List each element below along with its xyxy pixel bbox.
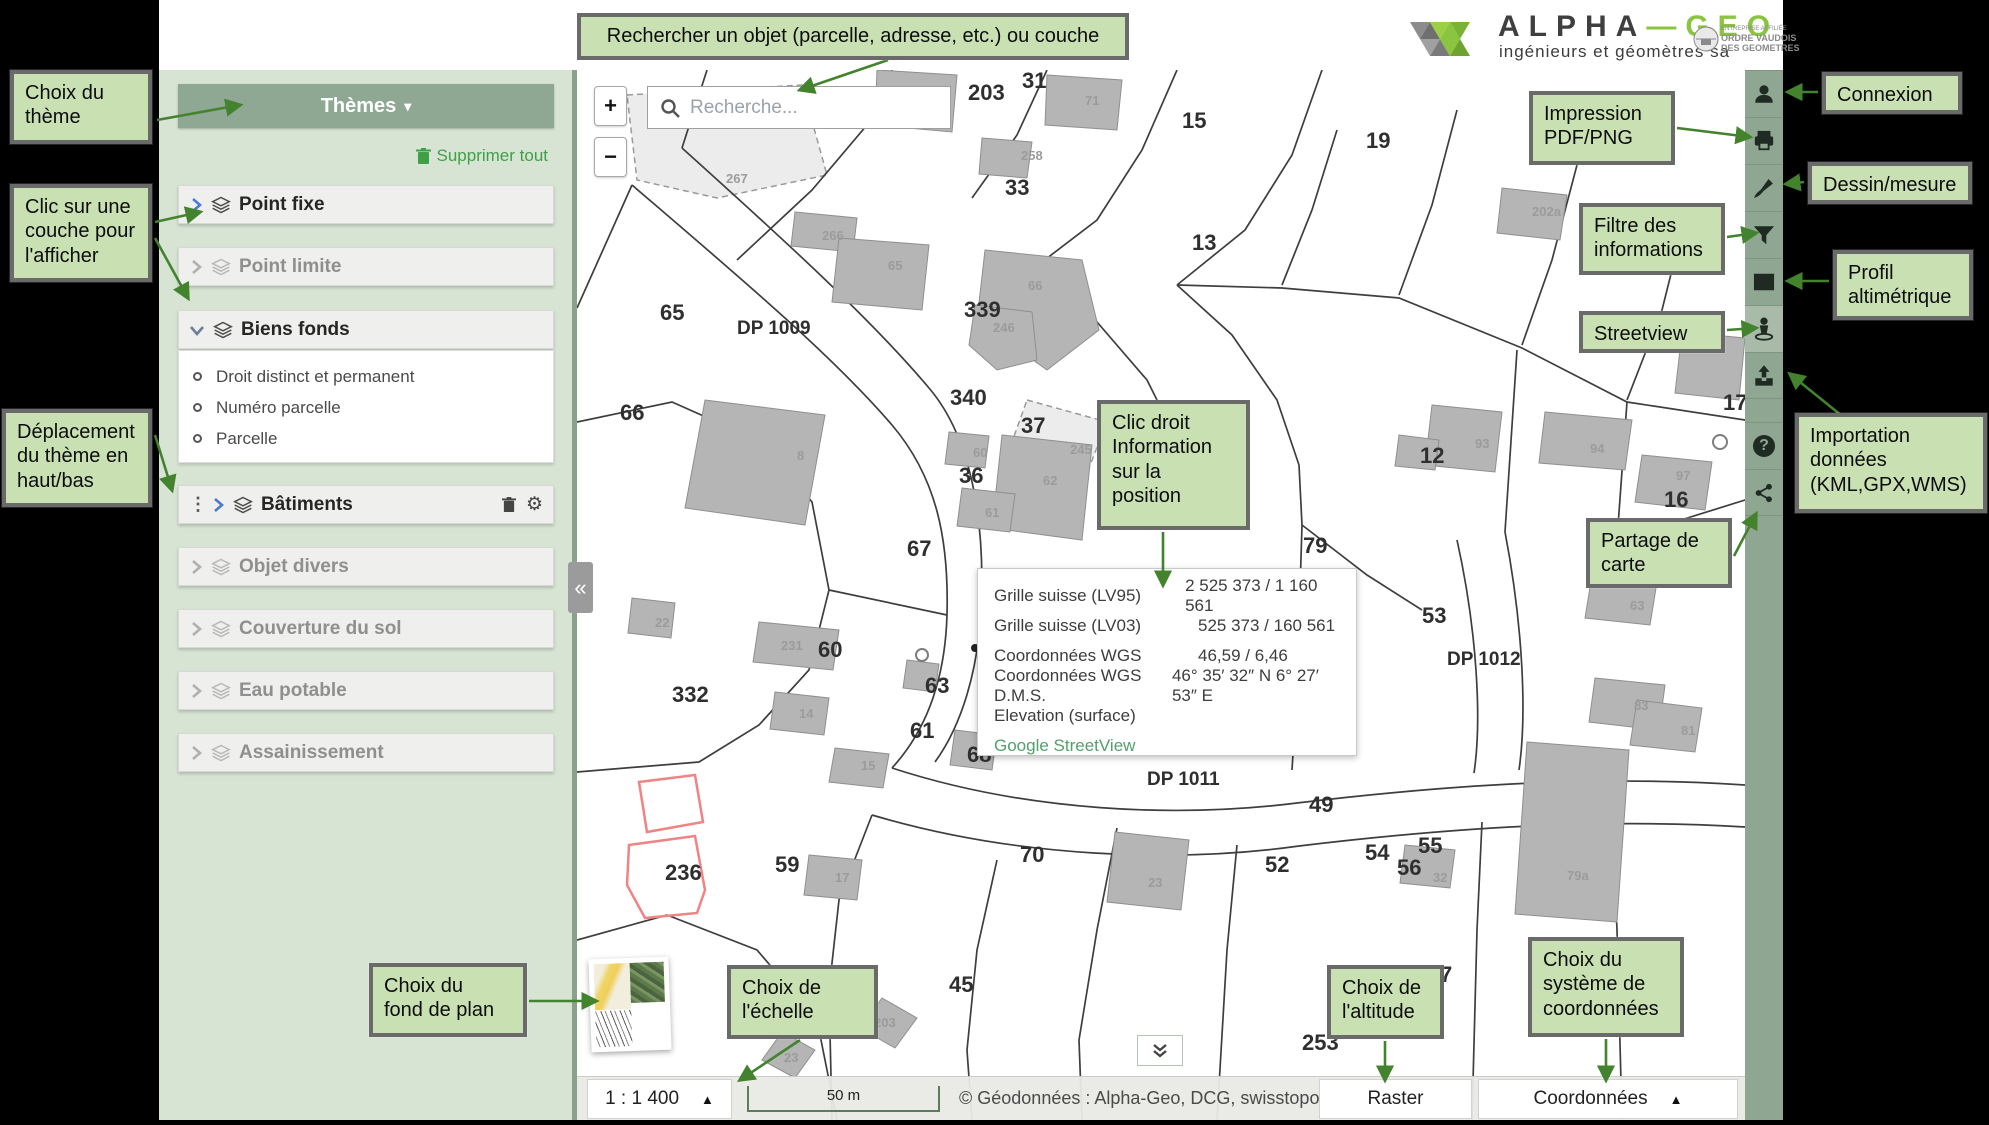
map-statusbar: 1 : 1 400▲ 50 m © Géodonnées : Alpha-Geo…: [577, 1076, 1745, 1120]
svg-text:17: 17: [835, 870, 849, 885]
layer-row-point-fixe[interactable]: Point fixe: [178, 185, 554, 224]
radio-bullet-icon: [193, 434, 202, 443]
layer-row-eau-potable[interactable]: Eau potable: [178, 671, 554, 710]
svg-text:23: 23: [1148, 875, 1162, 890]
svg-text:60: 60: [973, 445, 987, 460]
callout-choix-theme: Choix du thème: [10, 70, 152, 144]
callout-profil: Profil altimétrique: [1833, 250, 1973, 320]
elevation-profile-icon: [1753, 271, 1775, 293]
svg-text:54: 54: [1365, 840, 1390, 865]
layer-row-point-limite[interactable]: Point limite: [178, 247, 554, 286]
alpha-geo-logo: ALPHA—GEO ingénieurs et géomètres sa ENT…: [1408, 4, 1783, 66]
svg-text:79: 79: [1303, 533, 1327, 558]
svg-text:267: 267: [726, 171, 748, 186]
print-icon: [1753, 130, 1775, 152]
layer-label: Point limite: [239, 256, 543, 278]
coordinate-system-select[interactable]: Coordonnées▲: [1478, 1079, 1738, 1119]
filter-icon: [1753, 224, 1775, 246]
svg-text:63: 63: [925, 673, 949, 698]
chevron-right-icon[interactable]: [189, 559, 203, 575]
svg-text:94: 94: [1590, 441, 1605, 456]
svg-text:53: 53: [1422, 603, 1446, 628]
help-button[interactable]: ?: [1745, 422, 1783, 469]
svg-text:266: 266: [822, 228, 844, 243]
svg-text:13: 13: [1192, 230, 1216, 255]
sublayer-item[interactable]: Parcelle: [193, 423, 539, 454]
chevron-right-icon[interactable]: [189, 621, 203, 637]
brush-icon: [1753, 177, 1775, 199]
layers-icon: [211, 558, 231, 576]
layers-icon: [211, 196, 231, 214]
screenshot-stage: ALPHA—GEO ingénieurs et géomètres sa ENT…: [0, 0, 1989, 1125]
double-chevron-down-icon: [1149, 1043, 1171, 1059]
layers-icon: [211, 258, 231, 276]
svg-text:258: 258: [1021, 148, 1043, 163]
svg-text:66: 66: [1028, 278, 1042, 293]
upload-icon: [1753, 365, 1775, 387]
callout-echelle: Choix de l'échelle: [727, 965, 878, 1039]
share-button[interactable]: [1745, 469, 1783, 516]
svg-text:16: 16: [1664, 487, 1688, 512]
svg-text:17: 17: [1723, 390, 1745, 415]
svg-text:52: 52: [1265, 852, 1289, 877]
chevron-right-icon[interactable]: [189, 683, 203, 699]
callout-importation: Importation données (KML,GPX,WMS): [1795, 413, 1987, 513]
svg-text:62: 62: [1043, 473, 1057, 488]
collapse-sidebar-button[interactable]: «: [568, 562, 593, 613]
basemap-switcher[interactable]: [588, 957, 671, 1053]
svg-text:37: 37: [1021, 413, 1045, 438]
svg-text:55: 55: [1418, 833, 1442, 858]
chevron-right-icon[interactable]: [211, 497, 225, 513]
drag-handle-icon[interactable]: ⋮: [189, 494, 205, 515]
svg-text:15: 15: [861, 758, 875, 773]
svg-text:339: 339: [964, 297, 1001, 322]
scale-select[interactable]: 1 : 1 400▲: [587, 1079, 732, 1119]
badge-circle-icon: [1693, 26, 1719, 52]
svg-text:22: 22: [655, 615, 669, 630]
chevron-right-icon[interactable]: [189, 197, 203, 213]
svg-text:202a: 202a: [1532, 204, 1562, 219]
svg-text:DP 1012: DP 1012: [1447, 649, 1521, 670]
svg-text:19: 19: [1366, 128, 1390, 153]
layers-icon: [211, 744, 231, 762]
layer-row-assainissement[interactable]: Assainissement: [178, 733, 554, 772]
elevation-profile-button[interactable]: [1745, 258, 1783, 305]
callout-systeme-coordonnees: Choix du système de coordonnées: [1528, 937, 1684, 1037]
svg-text:236: 236: [665, 860, 702, 885]
streetview-button[interactable]: [1745, 305, 1783, 352]
svg-text:59: 59: [775, 852, 799, 877]
layers-icon: [211, 682, 231, 700]
layers-icon: [233, 496, 253, 514]
radio-bullet-icon: [193, 372, 202, 381]
svg-text:49: 49: [1309, 792, 1333, 817]
help-icon: ?: [1753, 435, 1775, 457]
layer-label: Assainissement: [239, 742, 543, 764]
callout-recherche: Rechercher un objet (parcelle, adresse, …: [577, 13, 1129, 60]
search-bar[interactable]: [647, 86, 951, 129]
streetview-icon: [1753, 317, 1775, 341]
svg-text:79a: 79a: [1567, 868, 1589, 883]
svg-text:31: 31: [1022, 70, 1046, 93]
layer-row-objet-divers[interactable]: Objet divers: [178, 547, 554, 586]
svg-text:340: 340: [950, 385, 987, 410]
svg-text:61: 61: [910, 718, 934, 743]
map-attribution: © Géodonnées : Alpha-Geo, DCG, swisstopo…: [959, 1088, 1370, 1109]
callout-fond-de-plan: Choix du fond de plan: [369, 963, 527, 1037]
svg-text:56: 56: [1397, 855, 1421, 880]
svg-text:63: 63: [1630, 598, 1644, 613]
clear-all-button[interactable]: Supprimer tout: [416, 146, 549, 166]
svg-text:97: 97: [1676, 468, 1690, 483]
import-data-button[interactable]: [1745, 352, 1783, 399]
svg-text:71: 71: [1085, 93, 1099, 108]
scalebar: 50 m: [747, 1086, 940, 1112]
svg-text:8: 8: [797, 448, 804, 463]
trash-icon[interactable]: [502, 497, 516, 513]
collapse-bottom-button[interactable]: [1137, 1035, 1183, 1066]
login-button[interactable]: [1745, 70, 1783, 117]
share-icon: [1754, 482, 1774, 504]
svg-text:67: 67: [907, 536, 931, 561]
svg-text:65: 65: [660, 300, 684, 325]
svg-text:70: 70: [1020, 842, 1044, 867]
svg-text:81: 81: [1681, 723, 1695, 738]
svg-text:332: 332: [672, 682, 709, 707]
logo-hexagon-icon: [1408, 6, 1488, 64]
layer-label: Bâtiments: [261, 494, 494, 516]
callout-clic-couche: Clic sur une couche pour l'afficher: [10, 184, 152, 282]
callout-filtre: Filtre des informations: [1579, 203, 1725, 275]
svg-text:66: 66: [620, 400, 644, 425]
zoom-out-button[interactable]: −: [594, 137, 627, 177]
svg-text:231: 231: [781, 638, 803, 653]
svg-text:60: 60: [818, 637, 842, 662]
chevron-down-icon: ▾: [404, 98, 411, 115]
search-icon: [660, 98, 680, 118]
layer-label: Objet divers: [239, 556, 543, 578]
layer-label: Biens fonds: [241, 319, 543, 341]
svg-text:33: 33: [1005, 175, 1029, 200]
svg-text:14: 14: [799, 706, 814, 721]
biens-fonds-sublayers: Droit distinct et permanent Numéro parce…: [178, 350, 554, 463]
trash-icon: [416, 148, 431, 165]
google-streetview-link[interactable]: Google StreetView: [994, 736, 1135, 756]
filter-button[interactable]: [1745, 211, 1783, 258]
svg-text:DP 1011: DP 1011: [1147, 769, 1220, 790]
tools-toolbar: ?: [1745, 70, 1783, 1120]
svg-text:93: 93: [1475, 436, 1489, 451]
callout-altitude: Choix de l'altitude: [1327, 965, 1444, 1039]
svg-text:15: 15: [1182, 108, 1206, 133]
gear-icon[interactable]: ⚙: [526, 493, 543, 516]
chevron-right-icon[interactable]: [189, 745, 203, 761]
callout-streetview: Streetview: [1579, 311, 1725, 353]
layer-label: Point fixe: [239, 194, 543, 216]
layers-icon: [213, 321, 233, 339]
svg-text:65: 65: [888, 258, 902, 273]
basemap-mode-select[interactable]: Raster: [1319, 1079, 1472, 1119]
chevron-right-icon[interactable]: [189, 259, 203, 275]
position-info-popup: Grille suisse (LV95)2 525 373 / 1 160 56…: [977, 568, 1357, 756]
draw-measure-button[interactable]: [1745, 164, 1783, 211]
callout-clic-droit: Clic droit Information sur la position: [1097, 400, 1250, 530]
svg-text:83: 83: [1634, 698, 1648, 713]
zoom-in-button[interactable]: +: [594, 86, 627, 126]
svg-text:32: 32: [1433, 870, 1447, 885]
svg-text:61: 61: [985, 505, 999, 520]
svg-text:DP 1009: DP 1009: [737, 318, 811, 339]
layers-icon: [211, 620, 231, 638]
svg-text:245: 245: [1070, 442, 1092, 457]
svg-text:203: 203: [968, 80, 1005, 105]
ordre-vaudois-badge: ENTREPRISE AFFILIÉE ORDRE VAUDOIS DES GE…: [1693, 26, 1783, 57]
layer-row-couverture-du-sol[interactable]: Couverture du sol: [178, 609, 554, 648]
svg-text:36: 36: [959, 463, 983, 488]
layer-row-biens-fonds[interactable]: Biens fonds: [178, 310, 554, 349]
user-icon: [1753, 83, 1775, 105]
themes-dropdown[interactable]: Thèmes▾: [178, 84, 554, 128]
caret-up-icon: ▲: [1670, 1092, 1683, 1107]
callout-dessin-mesure: Dessin/mesure: [1808, 162, 1972, 204]
sublayer-item[interactable]: Droit distinct et permanent: [193, 361, 539, 392]
chevron-down-icon[interactable]: [189, 323, 205, 337]
svg-text:45: 45: [949, 972, 973, 997]
svg-text:23: 23: [784, 1050, 798, 1065]
callout-impression: Impression PDF/PNG: [1529, 91, 1675, 165]
layer-row-batiments[interactable]: ⋮ Bâtiments ⚙: [178, 485, 554, 524]
print-button[interactable]: [1745, 117, 1783, 164]
sublayer-item[interactable]: Numéro parcelle: [193, 392, 539, 423]
svg-text:12: 12: [1420, 443, 1444, 468]
callout-connexion: Connexion: [1822, 72, 1962, 114]
caret-up-icon: ▲: [701, 1092, 714, 1107]
layer-label: Couverture du sol: [239, 618, 543, 640]
callout-deplacement-theme: Déplacement du thème en haut/bas: [2, 409, 152, 507]
svg-text:246: 246: [993, 320, 1015, 335]
search-input[interactable]: [690, 97, 920, 119]
layer-label: Eau potable: [239, 680, 543, 702]
radio-bullet-icon: [193, 403, 202, 412]
callout-partage: Partage de carte: [1586, 518, 1732, 588]
